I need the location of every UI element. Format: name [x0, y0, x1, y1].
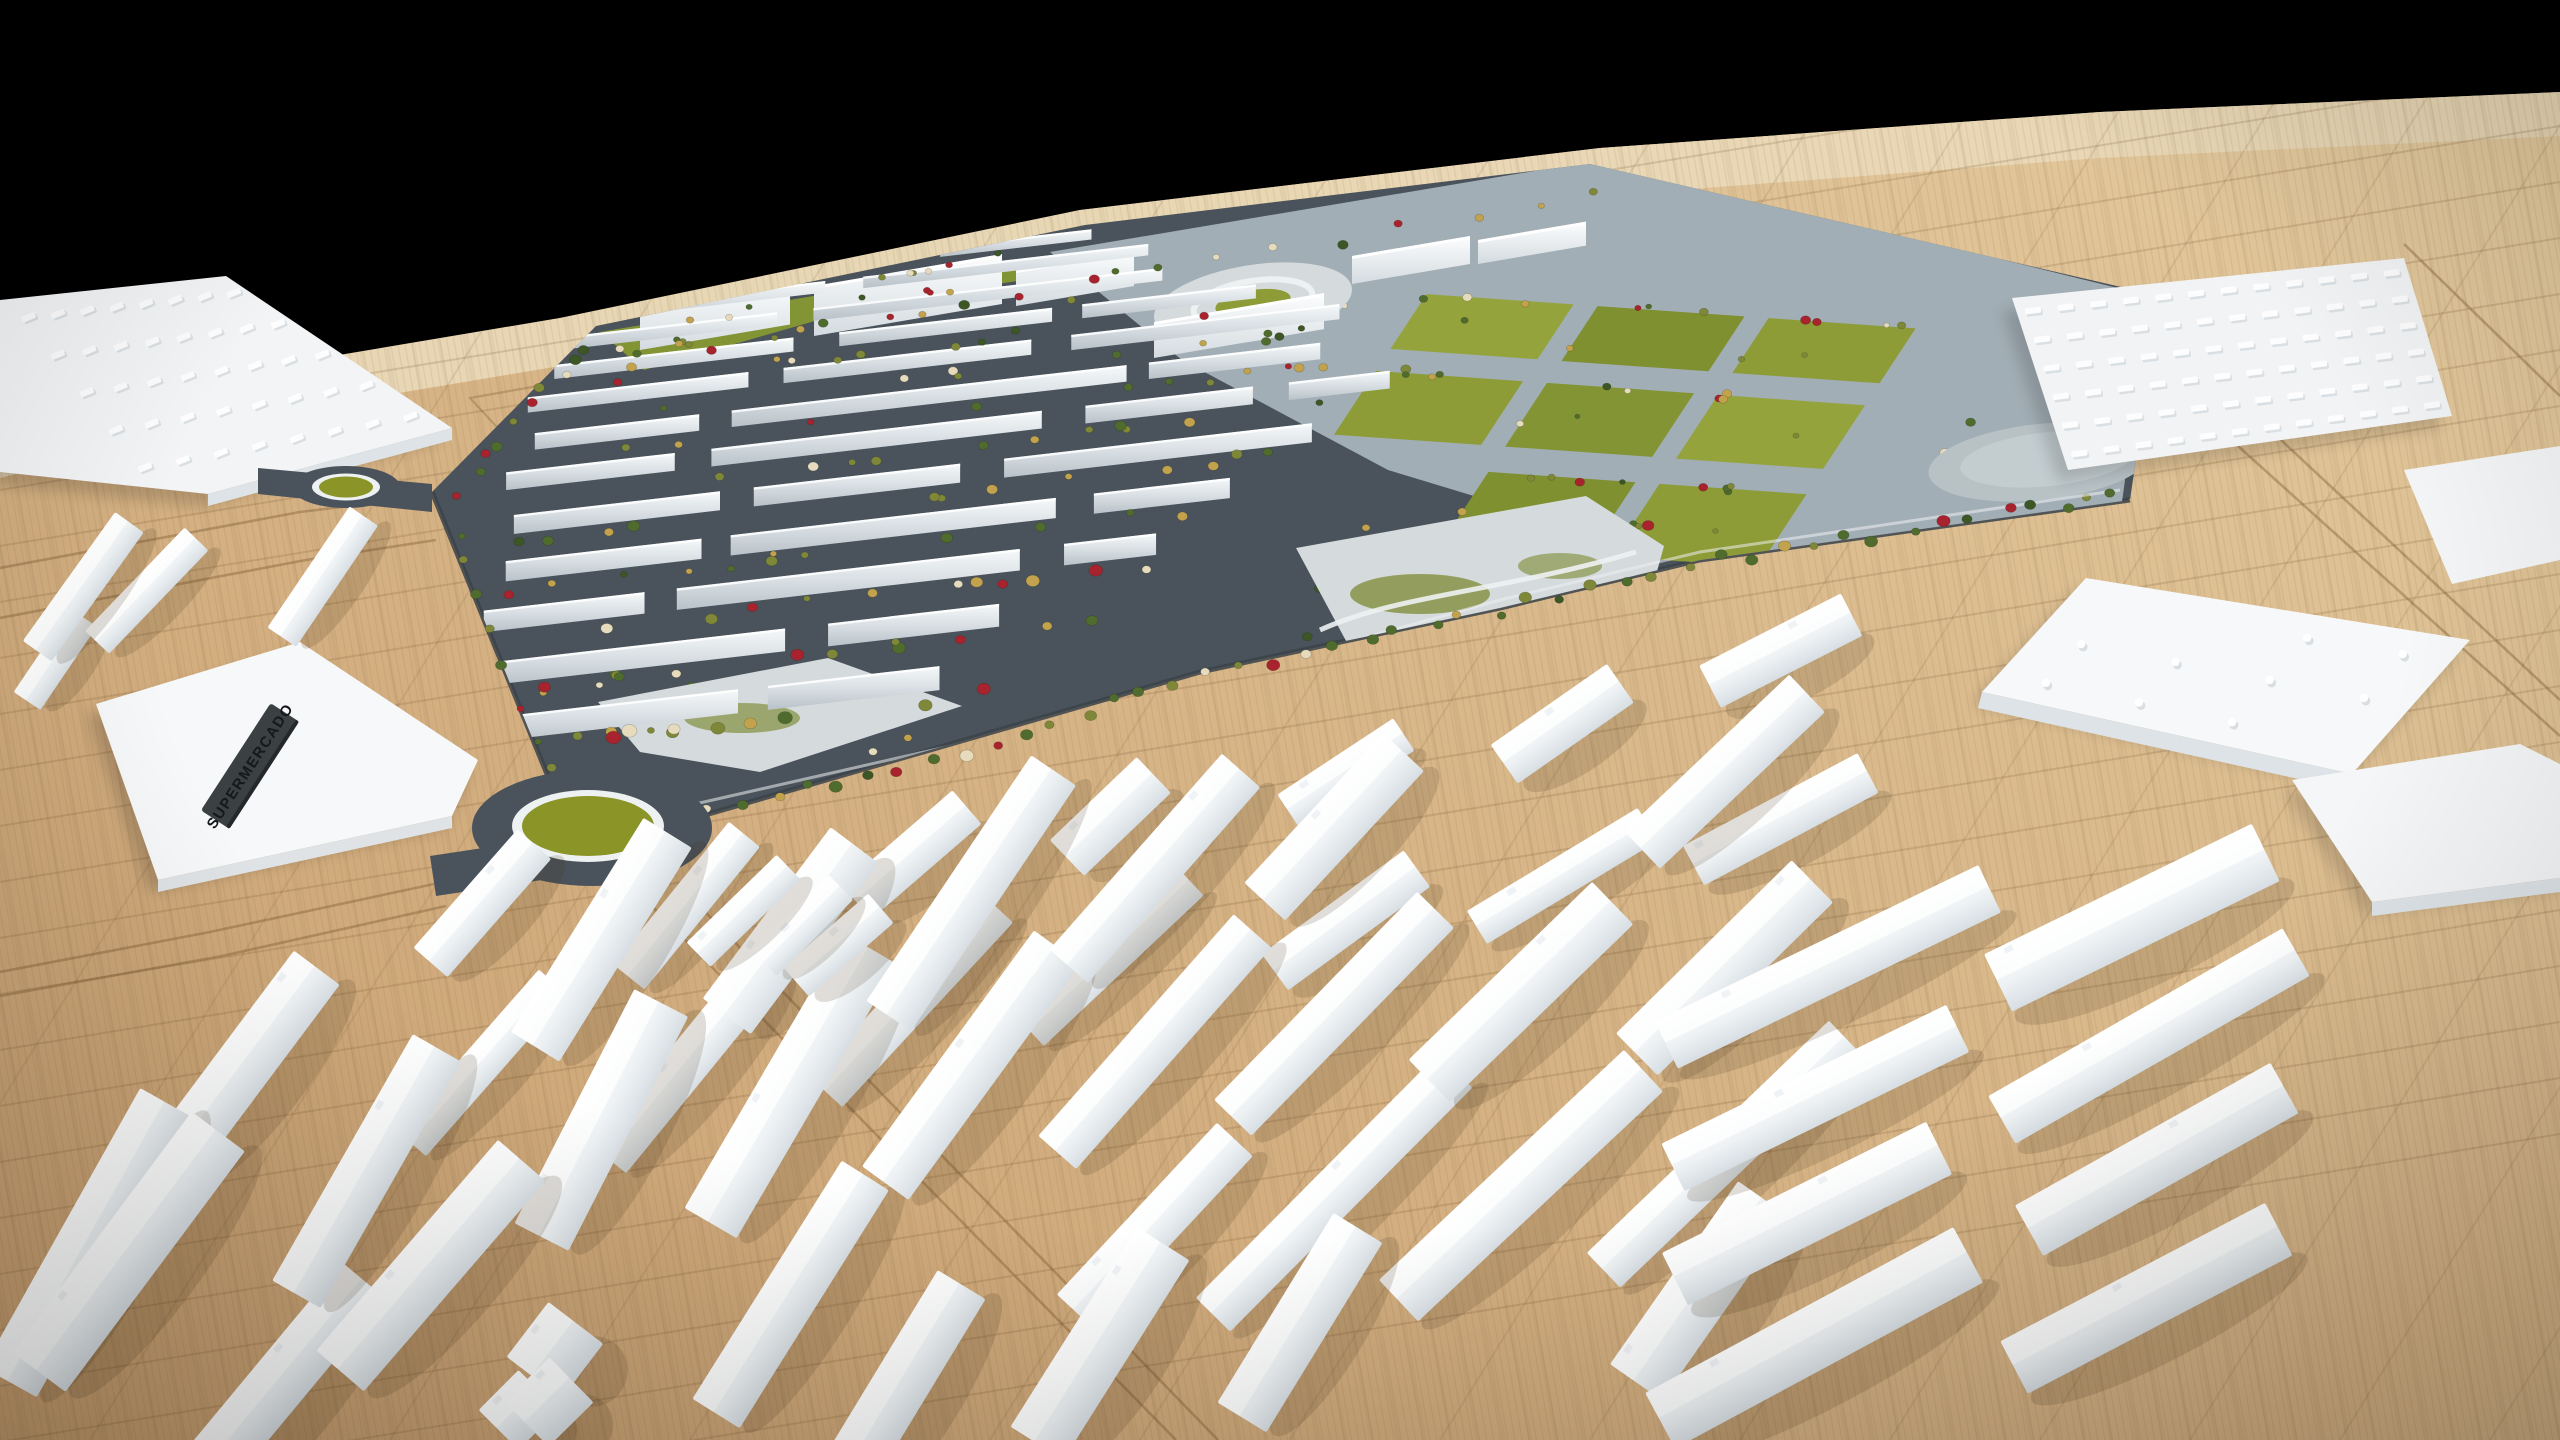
- vignette-overlay: [0, 0, 2560, 1440]
- architectural-model-photo: SUPERMERCADO: [0, 0, 2560, 1440]
- photo-stage: SUPERMERCADO: [0, 0, 2560, 1440]
